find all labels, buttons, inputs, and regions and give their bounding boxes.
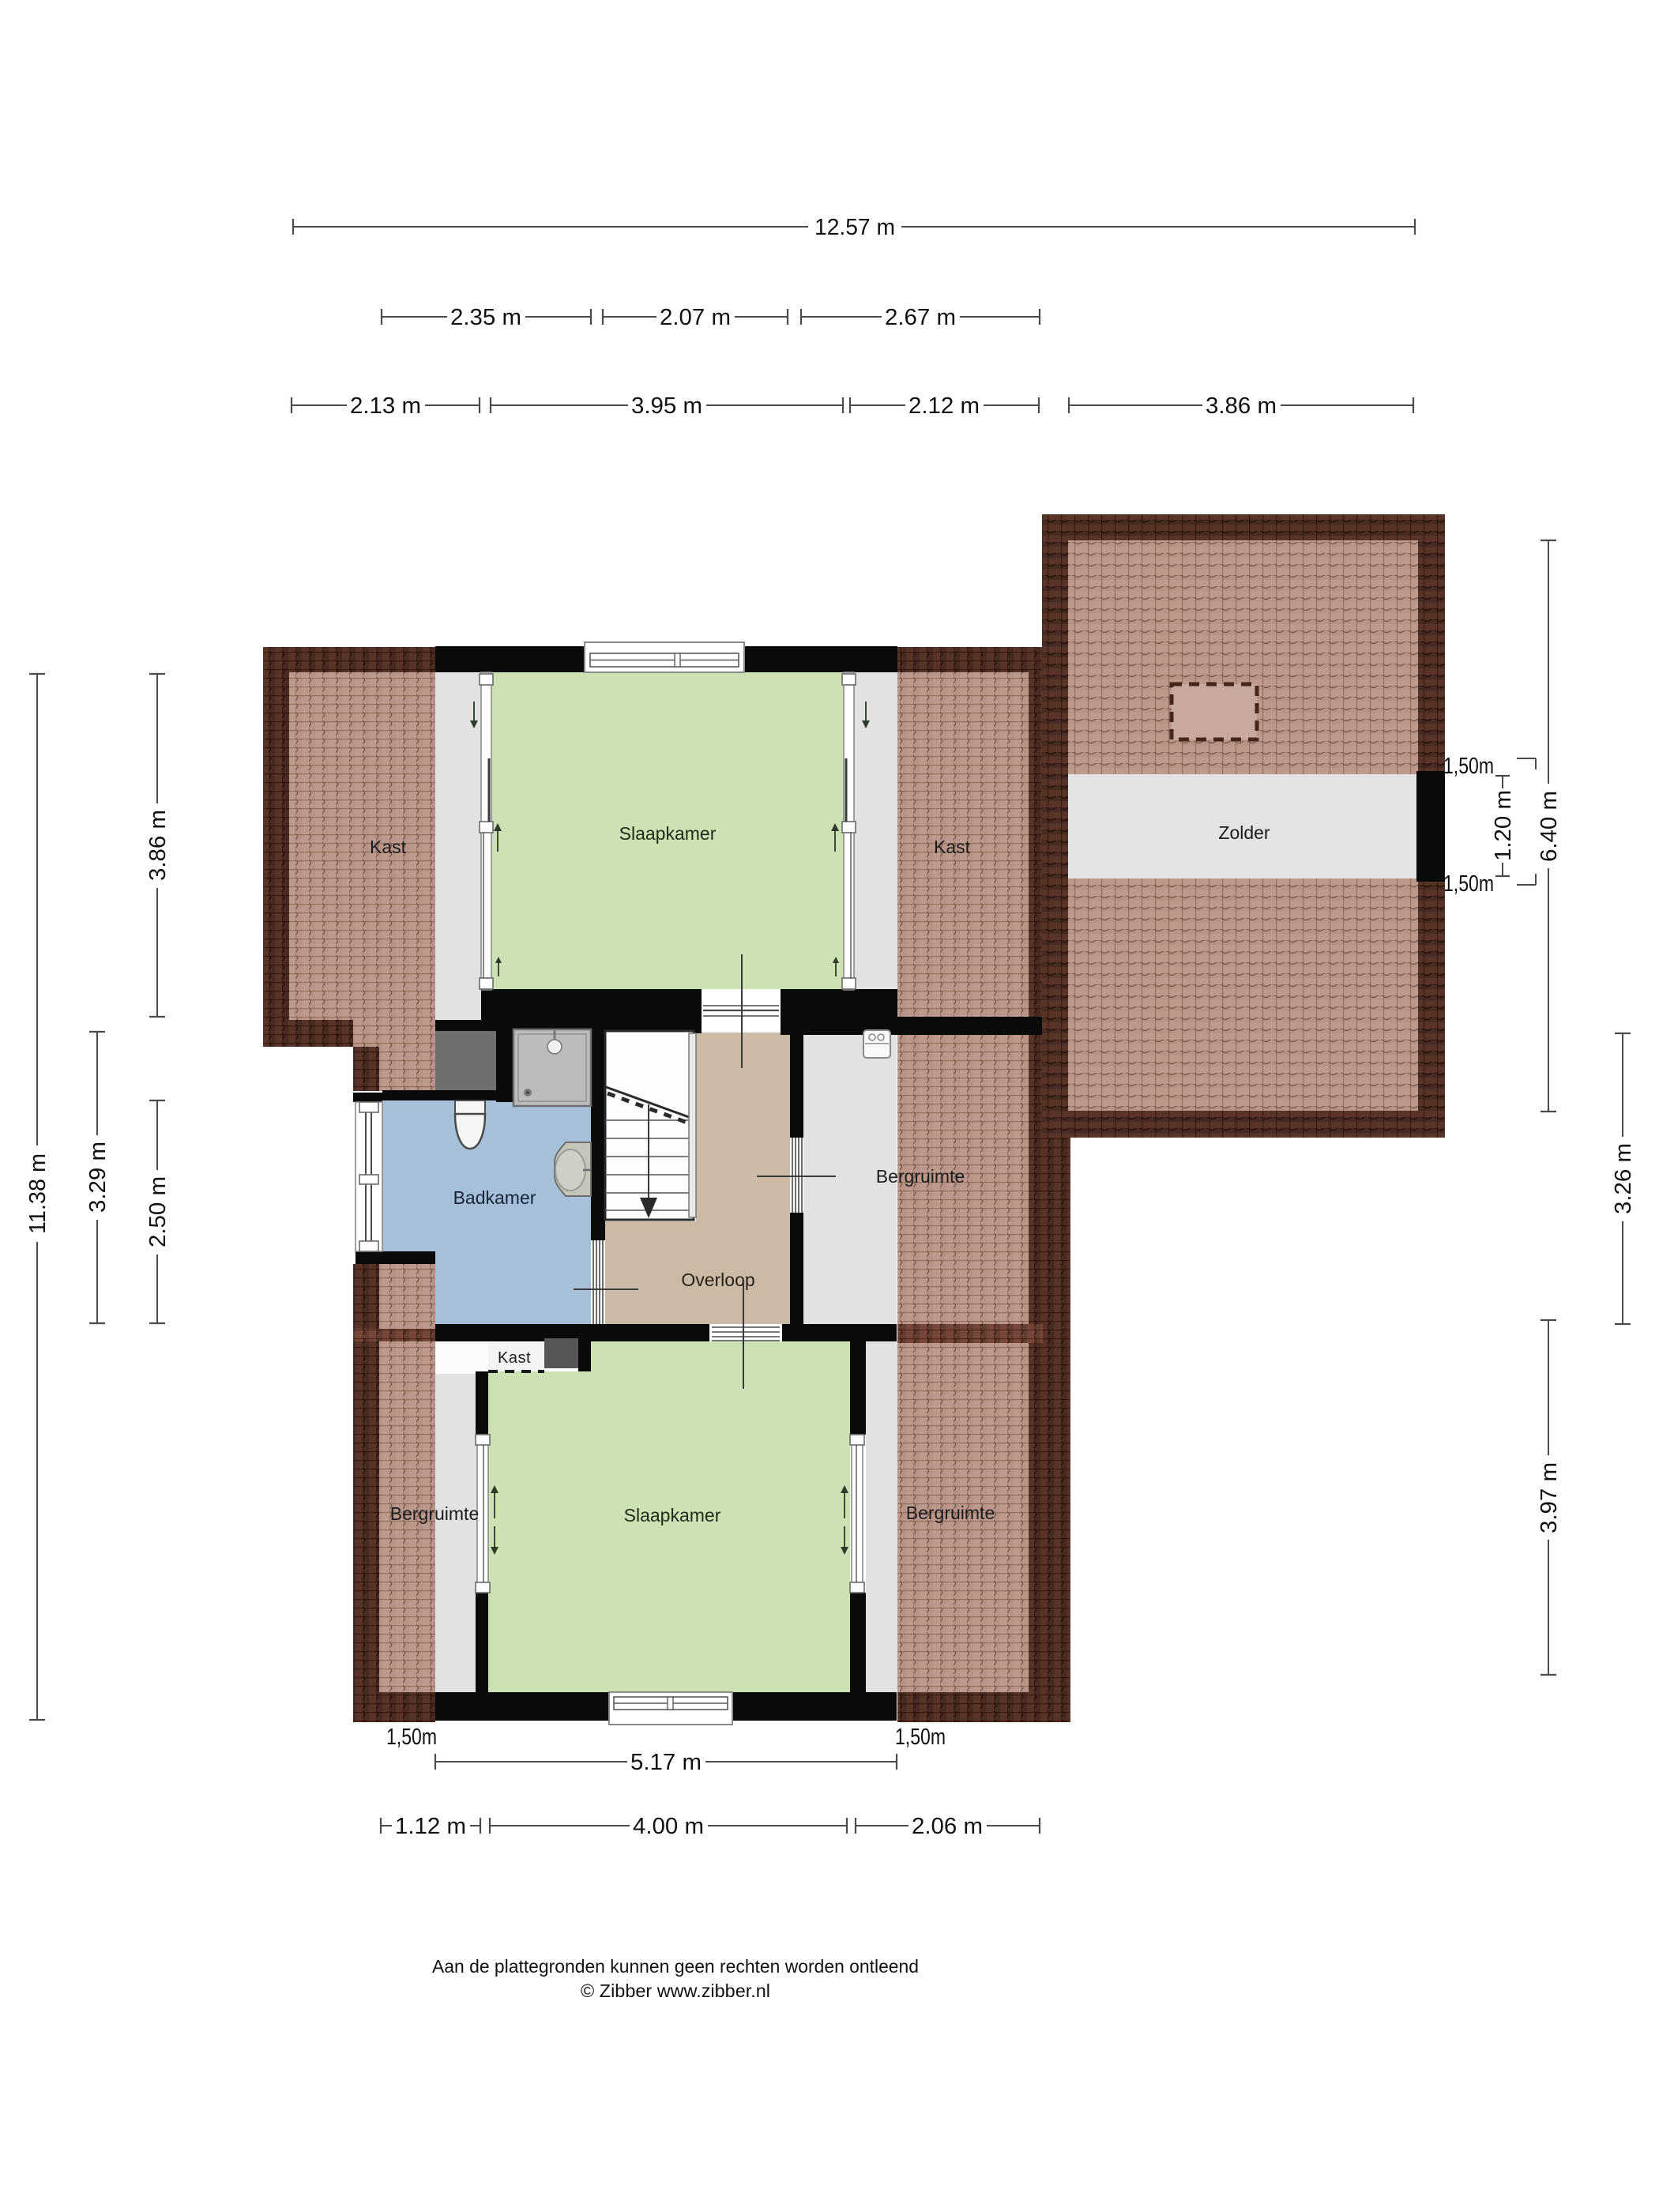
svg-text:3.26 m: 3.26 m (1611, 1143, 1636, 1214)
svg-text:3.95 m: 3.95 m (631, 393, 702, 419)
svg-text:2.35 m: 2.35 m (450, 305, 521, 330)
svg-text:2.67 m: 2.67 m (885, 305, 956, 330)
svg-text:Bergruimte: Bergruimte (906, 1503, 995, 1523)
svg-text:Slaapkamer: Slaapkamer (619, 823, 717, 844)
svg-text:1,50m: 1,50m (895, 1725, 946, 1750)
svg-text:Overloop: Overloop (681, 1270, 754, 1290)
svg-text:11.38 m: 11.38 m (25, 1153, 51, 1234)
svg-text:2.07 m: 2.07 m (660, 305, 731, 330)
svg-text:4.00 m: 4.00 m (633, 1814, 704, 1839)
svg-text:3.29 m: 3.29 m (85, 1142, 111, 1213)
svg-text:2.12 m: 2.12 m (908, 393, 980, 419)
svg-text:Bergruimte: Bergruimte (390, 1503, 479, 1524)
svg-text:2.06 m: 2.06 m (912, 1814, 983, 1839)
svg-text:Slaapkamer: Slaapkamer (624, 1505, 721, 1525)
svg-text:3.97 m: 3.97 m (1537, 1462, 1562, 1533)
svg-text:Bergruimte: Bergruimte (876, 1166, 965, 1187)
svg-text:Aan de plattegronden kunnen ge: Aan de plattegronden kunnen geen rechten… (432, 1956, 919, 1977)
svg-text:Zolder: Zolder (1218, 822, 1270, 843)
svg-text:3.86 m: 3.86 m (145, 810, 171, 881)
svg-text:1,50m: 1,50m (1443, 754, 1494, 779)
svg-text:12.57 m: 12.57 m (814, 215, 895, 240)
svg-text:© Zibber www.zibber.nl: © Zibber www.zibber.nl (581, 1981, 770, 2001)
svg-text:1.12 m: 1.12 m (395, 1814, 466, 1839)
svg-text:1,50m: 1,50m (1443, 871, 1494, 897)
svg-text:1,50m: 1,50m (386, 1725, 437, 1750)
svg-text:2.13 m: 2.13 m (350, 393, 421, 419)
svg-text:2.50 m: 2.50 m (145, 1176, 171, 1247)
svg-text:6.40 m: 6.40 m (1537, 791, 1562, 862)
svg-text:Kast: Kast (370, 837, 407, 857)
svg-text:Badkamer: Badkamer (453, 1187, 536, 1208)
svg-text:Kast: Kast (498, 1349, 531, 1367)
svg-text:Kast: Kast (934, 837, 971, 857)
svg-text:3.86 m: 3.86 m (1206, 393, 1277, 419)
svg-text:1.20 m: 1.20 m (1491, 790, 1516, 861)
svg-text:5.17 m: 5.17 m (630, 1750, 702, 1775)
